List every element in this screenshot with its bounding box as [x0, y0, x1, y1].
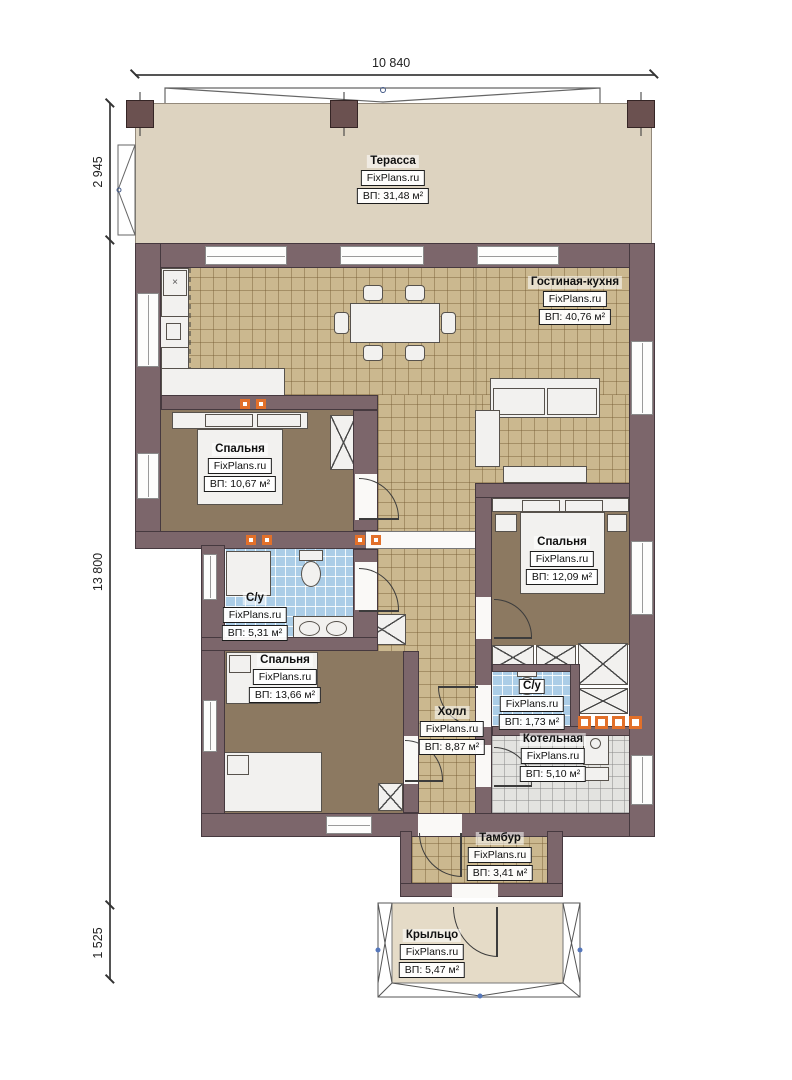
- window: [631, 541, 653, 615]
- window: [137, 453, 159, 499]
- radiator-mark: [262, 535, 272, 545]
- radiator-mark: [240, 399, 250, 409]
- dimension-line-top: [135, 74, 655, 76]
- room-name: С/у: [243, 592, 267, 605]
- nightstand: [495, 514, 517, 532]
- room-name: Спальня: [534, 536, 590, 549]
- door-leaf: [494, 637, 532, 639]
- watermark: FixPlans.ru: [468, 847, 533, 863]
- toilet-bowl: [301, 561, 321, 587]
- dining-chair: [363, 285, 383, 301]
- vanity-sink: [326, 621, 347, 636]
- watermark: FixPlans.ru: [521, 748, 586, 764]
- room-area: ВП: 5,10 м²: [520, 766, 586, 782]
- dimension-main-depth: 13 800: [91, 546, 105, 598]
- room-name: Тамбур: [476, 832, 524, 845]
- radiator-mark: [629, 716, 642, 729]
- door-opening: [476, 597, 491, 639]
- floor-plan: 10 840 2 945 13 800 1 525: [0, 0, 792, 1080]
- room-area: ВП: 8,87 м²: [419, 739, 485, 755]
- vanity-sink: [299, 621, 320, 636]
- window: [137, 293, 159, 367]
- dining-chair: [363, 345, 383, 361]
- door-leaf: [494, 785, 532, 787]
- door-leaf: [460, 833, 462, 877]
- toilet-tank: [299, 550, 323, 561]
- room-label-bedroom-1: Спальня FixPlans.ru ВП: 10,67 м²: [204, 443, 276, 492]
- bed-pillow: [229, 655, 251, 673]
- room-name: Гостиная-кухня: [528, 276, 622, 289]
- room-area: ВП: 10,67 м²: [204, 476, 276, 492]
- bed-pillow: [522, 500, 560, 512]
- watermark: FixPlans.ru: [543, 291, 608, 307]
- shower-tray: [226, 551, 271, 596]
- room-label-boiler-room: Котельная FixPlans.ru ВП: 5,10 м²: [520, 733, 586, 782]
- wardrobe: [378, 783, 403, 811]
- window: [326, 816, 372, 834]
- watermark: FixPlans.ru: [400, 944, 465, 960]
- radiator-mark: [578, 716, 591, 729]
- watermark: FixPlans.ru: [208, 458, 273, 474]
- radiator-mark: [246, 535, 256, 545]
- radiator-mark: [612, 716, 625, 729]
- kitchen-sink-bowl: [166, 323, 181, 340]
- room-label-bedroom-2: Спальня FixPlans.ru ВП: 13,66 м²: [249, 654, 321, 703]
- room-label-bathroom-1: С/у FixPlans.ru ВП: 5,31 м²: [222, 592, 288, 641]
- dining-chair: [334, 312, 349, 334]
- window: [203, 554, 217, 600]
- wall-bathroom2-top: [492, 664, 580, 672]
- watermark: FixPlans.ru: [223, 607, 288, 623]
- bed-pillow: [205, 414, 253, 427]
- window: [477, 246, 559, 265]
- window: [631, 755, 653, 805]
- room-name: Спальня: [212, 443, 268, 456]
- dining-chair: [405, 345, 425, 361]
- room-name: С/у: [519, 679, 545, 694]
- room-area: ВП: 13,66 м²: [249, 687, 321, 703]
- room-label-bathroom-2: С/у FixPlans.ru ВП: 1,73 м²: [499, 679, 565, 730]
- wall-bedroom3-top: [475, 483, 655, 498]
- wall-bedroom1-bottom: [135, 531, 378, 549]
- radiator-mark: [355, 535, 365, 545]
- room-label-bedroom-3: Спальня FixPlans.ru ВП: 12,09 м²: [526, 536, 598, 585]
- watermark: FixPlans.ru: [530, 551, 595, 567]
- terrace-column: [126, 100, 154, 128]
- room-label-porch: Крыльцо FixPlans.ru ВП: 5,47 м²: [399, 929, 465, 978]
- terrace-column: [627, 100, 655, 128]
- door-opening: [452, 884, 498, 898]
- wall-bedroom2-right: [403, 651, 419, 813]
- bed-pillow: [565, 500, 603, 512]
- room-area: ВП: 31,48 м²: [357, 188, 429, 204]
- dimension-porch-depth: 1 525: [91, 919, 105, 967]
- room-name: Крыльцо: [403, 929, 461, 942]
- dimension-line-left: [109, 103, 111, 980]
- room-name: Спальня: [257, 654, 313, 667]
- bed-pillow: [257, 414, 301, 427]
- hall-cabinet: [475, 410, 500, 467]
- window: [205, 246, 287, 265]
- hall-passage-opening: [366, 531, 475, 549]
- nightstand: [607, 514, 627, 532]
- bed-pillow: [227, 755, 249, 775]
- room-label-terrace: Терасса FixPlans.ru ВП: 31,48 м²: [357, 155, 429, 204]
- dining-chair: [405, 285, 425, 301]
- radiator-mark: [256, 399, 266, 409]
- dimension-width: 10 840: [372, 56, 410, 70]
- porch-roof-dot: [376, 948, 381, 953]
- room-name: Терасса: [367, 155, 419, 168]
- watermark: FixPlans.ru: [253, 669, 318, 685]
- watermark: FixPlans.ru: [500, 696, 565, 712]
- room-area: ВП: 40,76 м²: [539, 309, 611, 325]
- room-name: Котельная: [520, 733, 586, 746]
- room-area: ВП: 12,09 м²: [526, 569, 598, 585]
- bed-headboard: [492, 498, 629, 512]
- door-leaf: [405, 780, 443, 782]
- room-label-vestibule: Тамбур FixPlans.ru ВП: 3,41 м²: [467, 832, 533, 881]
- dimension-terrace-depth: 2 945: [91, 152, 105, 192]
- boiler-cabinet: [583, 767, 609, 781]
- room-name: Холл: [435, 706, 470, 719]
- room-area: ВП: 5,31 м²: [222, 625, 288, 641]
- sofa-cushion: [493, 388, 545, 415]
- porch-roof-dot: [578, 948, 583, 953]
- room-label-living-kitchen: Гостиная-кухня FixPlans.ru ВП: 40,76 м²: [528, 276, 622, 325]
- door-leaf: [359, 518, 399, 520]
- built-in-wardrobe: [578, 688, 628, 714]
- door-leaf: [359, 610, 399, 612]
- radiator-mark: [595, 716, 608, 729]
- radiator-mark: [371, 535, 381, 545]
- fridge: [163, 270, 187, 296]
- door-leaf: [496, 907, 498, 957]
- dining-table: [350, 303, 440, 343]
- tv-stand: [503, 466, 587, 483]
- watermark: FixPlans.ru: [361, 170, 426, 186]
- watermark: FixPlans.ru: [420, 721, 485, 737]
- room-area: ВП: 1,73 м²: [499, 714, 565, 730]
- room-area: ВП: 5,47 м²: [399, 962, 465, 978]
- roof-overhang-line: [165, 88, 600, 103]
- built-in-wardrobe: [578, 643, 628, 685]
- porch-roof-dot: [478, 994, 483, 999]
- boiler-dial: [590, 738, 601, 749]
- terrace-column: [330, 100, 358, 128]
- wall-right: [629, 243, 655, 837]
- kitchen-counter-bottom: [161, 368, 285, 396]
- wall-left-upper: [135, 243, 161, 545]
- window: [340, 246, 424, 265]
- sofa-cushion: [547, 388, 597, 415]
- room-label-hall: Холл FixPlans.ru ВП: 8,87 м²: [419, 706, 485, 755]
- wall-bedroom1-top: [161, 395, 378, 410]
- window: [631, 341, 653, 415]
- window: [203, 700, 217, 752]
- dining-chair: [441, 312, 456, 334]
- room-area: ВП: 3,41 м²: [467, 865, 533, 881]
- door-leaf: [438, 686, 478, 688]
